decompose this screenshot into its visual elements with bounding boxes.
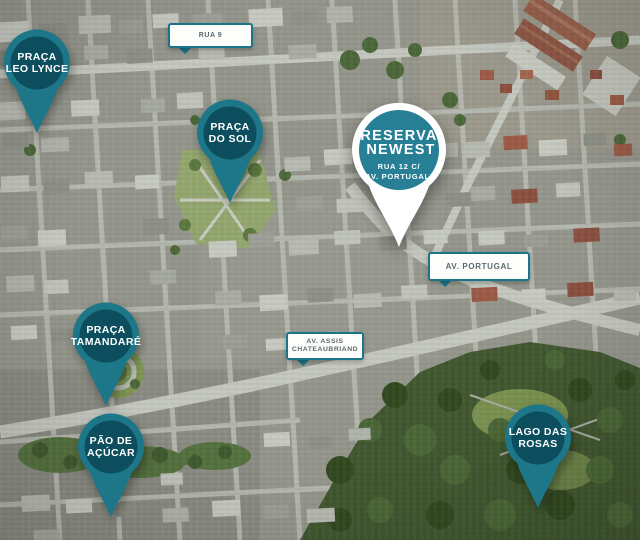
pin-label-line1: LAGO DAS [509, 426, 568, 438]
pin-label-line2: LEO LYNCE [6, 63, 69, 75]
pin-address-line2: AV. PORTUGAL. [365, 172, 432, 181]
brand-logo-line2: NEWEST [366, 142, 435, 158]
street-name: RUA 9 [199, 32, 223, 39]
street-name-line1: AV. ASSIS [306, 338, 343, 347]
street-label-rua-9: RUA 9 [168, 23, 253, 48]
street-name: AV. PORTUGAL [446, 262, 513, 271]
pin-label-line1: PÃO DE [90, 434, 133, 447]
street-label-av-assis-chateaubriand: AV. ASSIS CHATEAUBRIAND [286, 332, 364, 360]
street-label-av-portugal: AV. PORTUGAL [428, 252, 530, 281]
pin-address-line1: RUA 12 C/ [378, 162, 421, 171]
pin-label-line1: PRAÇA [86, 324, 125, 336]
location-map: RUA 9 AV. PORTUGAL AV. ASSIS CHATEAUBRIA… [0, 0, 640, 540]
pin-label-line2: ROSAS [518, 438, 557, 450]
pin-label-line1: PRAÇA [210, 121, 249, 133]
pin-label-line2: DO SOL [209, 133, 252, 145]
pin-label-line1: PRAÇA [17, 51, 56, 63]
pin-label-line2: AÇÚCAR [87, 446, 135, 459]
pin-label-line2: TAMANDARÉ [71, 335, 141, 348]
street-name-line2: CHATEAUBRIAND [292, 346, 358, 355]
